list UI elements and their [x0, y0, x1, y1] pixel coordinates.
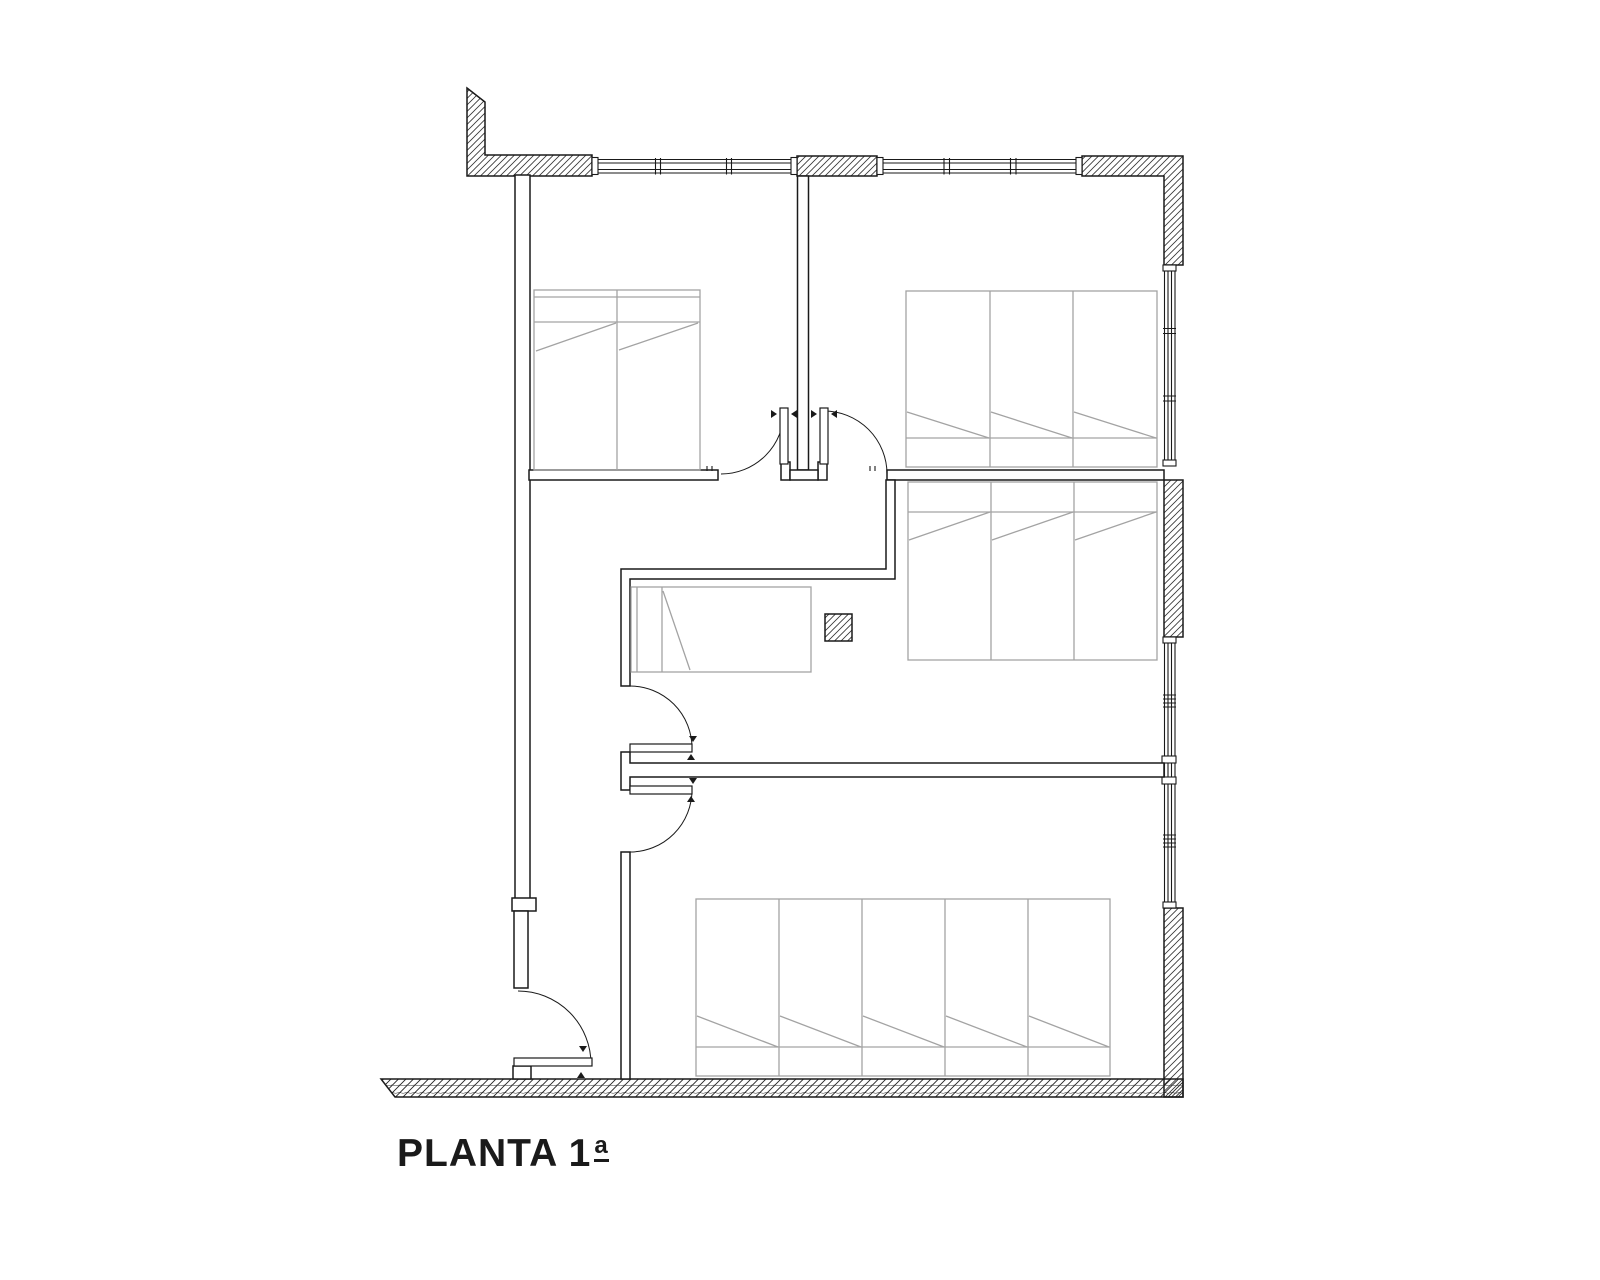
- wall-hallway-south: [621, 752, 1164, 790]
- windows: [592, 158, 1176, 909]
- plan-title: PLANTA 1a: [397, 1132, 609, 1176]
- wall-pier-top-left: [467, 88, 592, 176]
- pillar: [825, 614, 852, 641]
- floor-plan-drawing: [0, 0, 1600, 1280]
- window-right-upper: [1163, 265, 1176, 466]
- exterior-walls: [467, 88, 1183, 1097]
- wall-pier-top-middle: [797, 156, 877, 176]
- plan-title-main: PLANTA 1: [397, 1132, 591, 1175]
- door-top-left-room: [721, 408, 797, 474]
- plan-title-ordinal: a: [594, 1134, 608, 1162]
- floor-plan-sheet: PLANTA 1a: [0, 0, 1600, 1280]
- single-bed: [631, 587, 811, 672]
- wardrobe-top-right: [906, 291, 1157, 467]
- wall-corner-top-right: [1082, 156, 1183, 265]
- wall-top-rooms-divider: [798, 176, 809, 470]
- door-entrance: [514, 991, 592, 1078]
- wall-pier-right-bottom: [1164, 908, 1183, 1097]
- window-top-right: [877, 158, 1082, 175]
- door-bottom-room: [630, 778, 697, 852]
- wardrobe-bottom: [696, 899, 1110, 1076]
- door-post-right: [818, 462, 827, 480]
- wardrobe-top-left: [534, 290, 700, 470]
- wall-top-rooms-south-left: [529, 470, 718, 480]
- wall-pier-right-middle: [1164, 480, 1183, 637]
- wall-entrance-stub: [513, 1066, 531, 1079]
- door-post-left: [781, 462, 790, 480]
- wall-left-upper: [515, 175, 530, 900]
- window-top-left: [592, 158, 797, 175]
- door-top-right-room: [811, 408, 887, 474]
- door-stub-base: [790, 470, 818, 480]
- wall-left-lower: [514, 911, 528, 988]
- wall-left-joint: [512, 898, 536, 911]
- door-middle-room: [630, 686, 697, 760]
- ground-line: [381, 1079, 1183, 1097]
- ground-hatch-band: [381, 1079, 1183, 1097]
- wall-top-rooms-south-right: [887, 470, 1164, 480]
- structural-column: [825, 614, 852, 641]
- wall-corridor-bottom: [621, 852, 630, 1079]
- doors: [514, 408, 887, 1078]
- wardrobe-middle-right: [908, 482, 1157, 660]
